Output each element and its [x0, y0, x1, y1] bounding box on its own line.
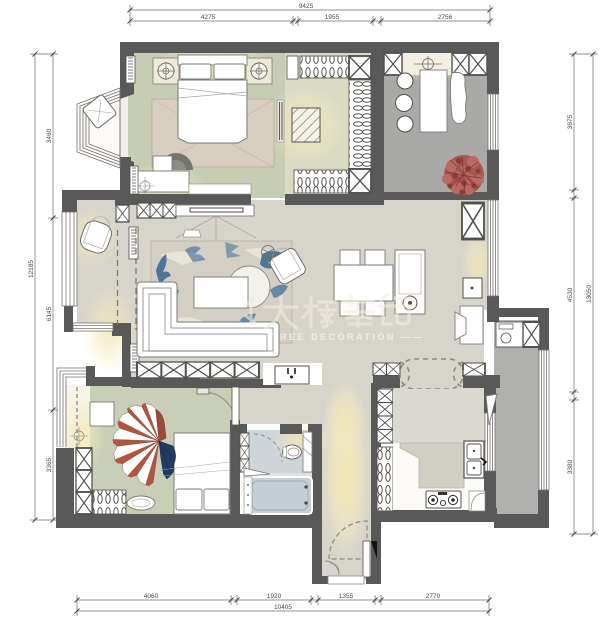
- svg-text:—— TREE DECORATION ——: —— TREE DECORATION ——: [244, 332, 424, 342]
- svg-text:12185: 12185: [28, 260, 35, 278]
- svg-text:3675: 3675: [567, 114, 574, 129]
- svg-text:3380: 3380: [567, 459, 574, 474]
- svg-text:3460: 3460: [46, 128, 53, 143]
- svg-text:9425: 9425: [299, 3, 314, 10]
- svg-text:3365: 3365: [46, 457, 53, 472]
- svg-text:10405: 10405: [274, 604, 292, 611]
- svg-text:2770: 2770: [426, 593, 441, 600]
- svg-text:4530: 4530: [567, 287, 574, 302]
- svg-text:2756: 2756: [438, 14, 453, 21]
- svg-text:6145: 6145: [46, 306, 53, 321]
- svg-text:1355: 1355: [339, 593, 354, 600]
- svg-text:1920: 1920: [267, 593, 282, 600]
- svg-text:4275: 4275: [201, 14, 216, 21]
- svg-text:1955: 1955: [325, 14, 340, 21]
- svg-text:13050: 13050: [586, 285, 593, 303]
- svg-text:4060: 4060: [144, 593, 159, 600]
